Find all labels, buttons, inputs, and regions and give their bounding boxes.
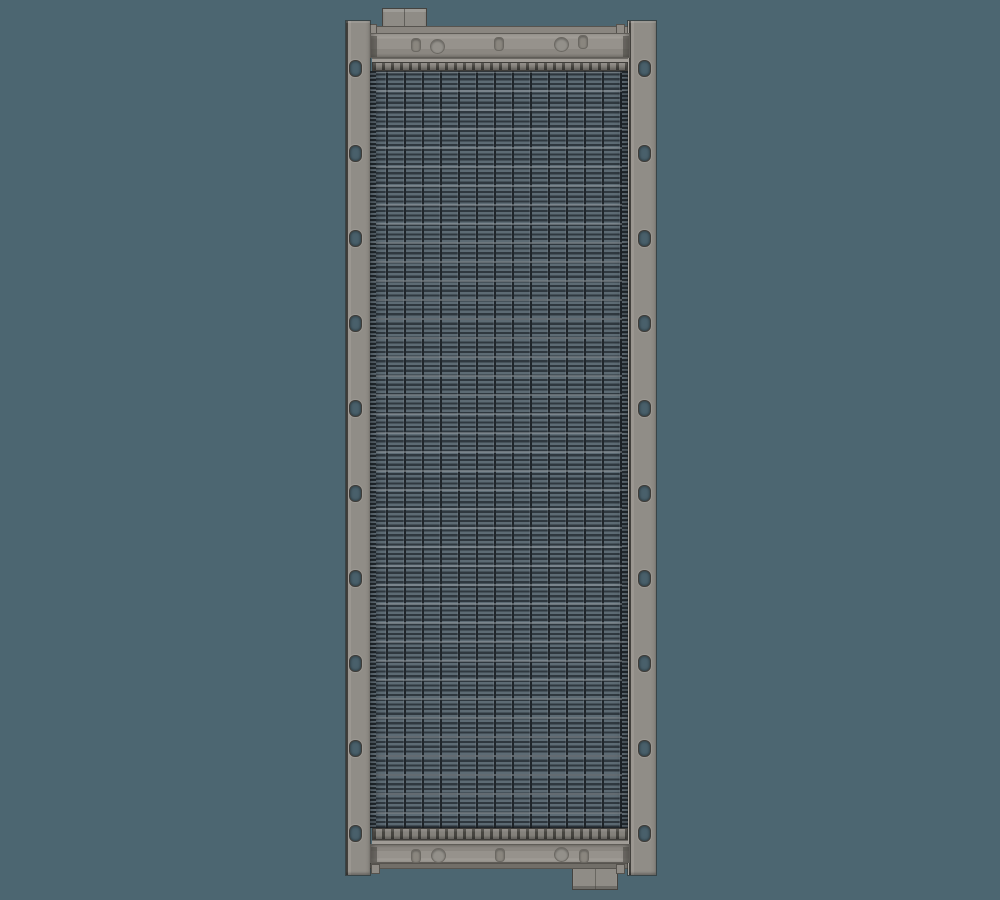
bottom-header-left-end-slot	[371, 847, 377, 862]
left-mounting-rail	[346, 21, 370, 875]
top-header-tank	[370, 33, 630, 58]
top-header-left-end-slot	[371, 36, 377, 57]
top-header-right-end-slot	[623, 36, 629, 57]
top-tube-plate	[372, 62, 628, 71]
bottom-header-right-end-slot	[623, 847, 629, 862]
bottom-header-tank	[370, 844, 630, 863]
bottom-right-clip	[616, 864, 625, 874]
core-right-fin-edge	[622, 71, 628, 828]
render-viewport	[0, 0, 1000, 900]
bottom-left-clip	[371, 864, 380, 874]
bottom-tank-band	[372, 840, 628, 844]
radiator-fin-core	[370, 71, 628, 828]
bottom-tube-plate	[372, 828, 628, 840]
core-left-fin-edge	[370, 71, 376, 828]
right-mounting-rail	[628, 21, 656, 875]
bottom-retainer-strip	[362, 863, 638, 869]
